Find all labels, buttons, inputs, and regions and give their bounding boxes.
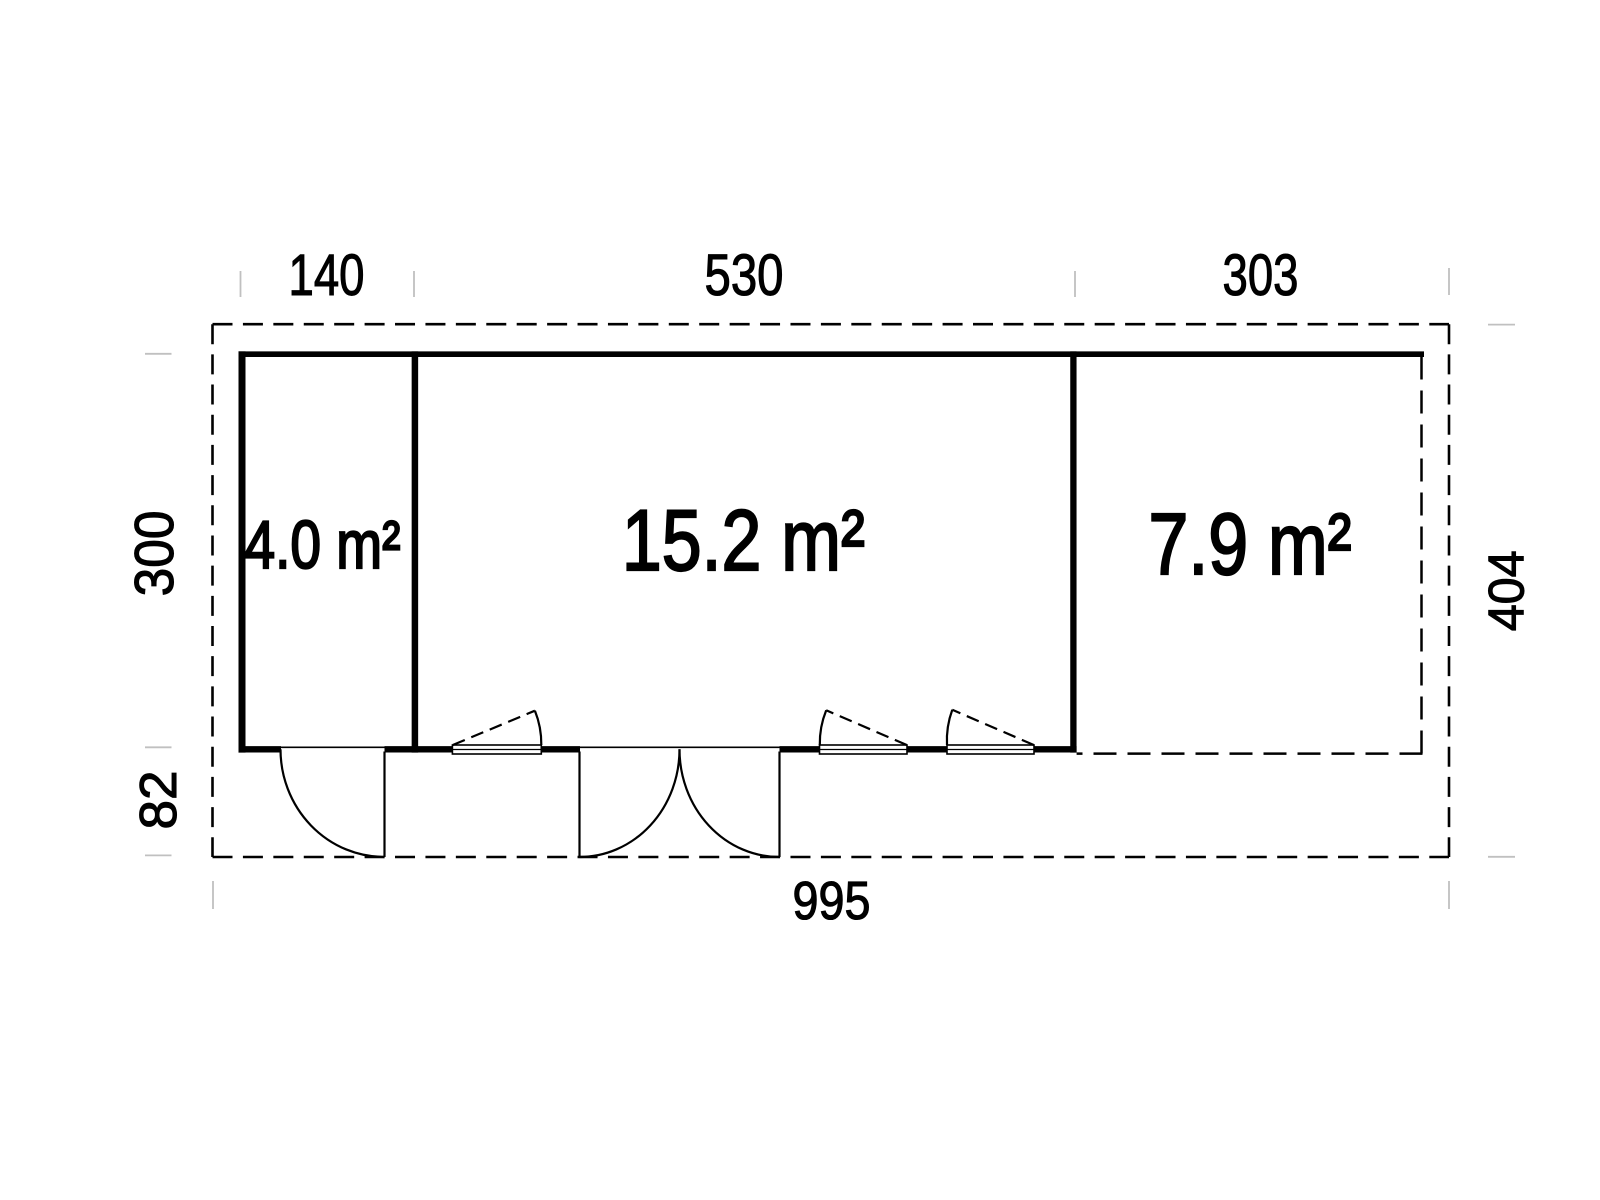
- svg-text:530: 530: [705, 243, 784, 308]
- svg-text:404: 404: [1479, 550, 1535, 631]
- svg-text:7.9 m²: 7.9 m²: [1149, 496, 1352, 593]
- svg-text:140: 140: [289, 243, 365, 308]
- svg-text:82: 82: [130, 771, 188, 830]
- svg-text:300: 300: [123, 510, 185, 596]
- svg-text:995: 995: [793, 871, 871, 931]
- svg-text:303: 303: [1223, 243, 1299, 308]
- svg-text:4.0 m²: 4.0 m²: [245, 507, 401, 583]
- svg-text:15.2 m²: 15.2 m²: [622, 493, 865, 589]
